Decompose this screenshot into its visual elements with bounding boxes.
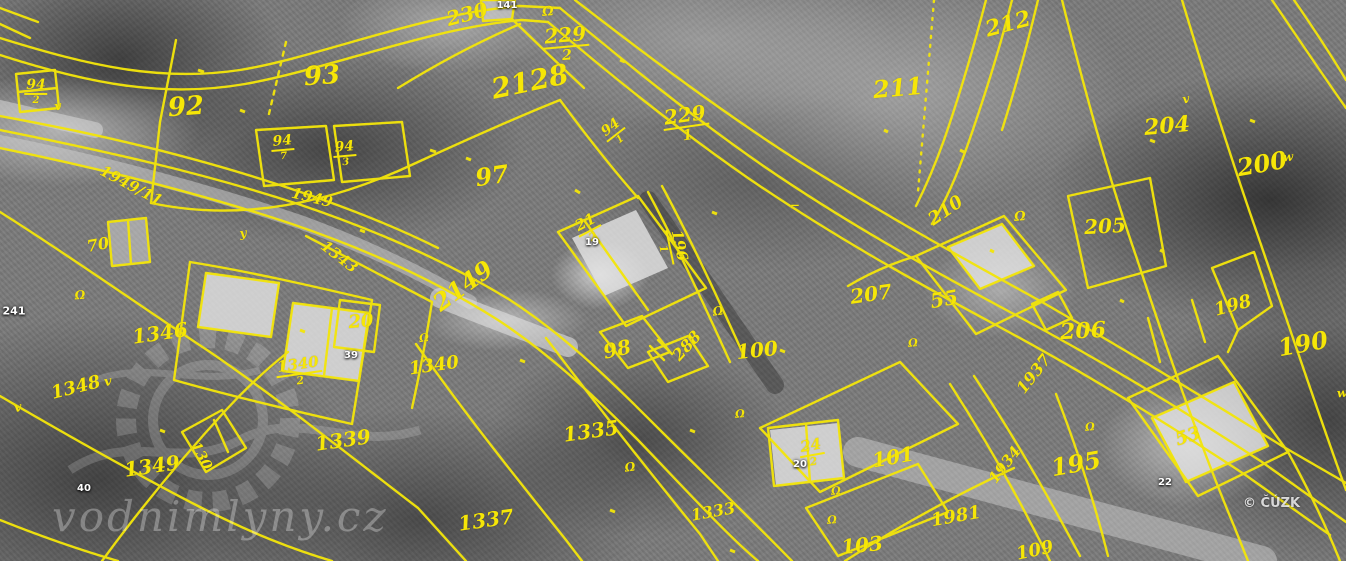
land-use-symbol: Ω: [908, 337, 919, 349]
land-use-symbol: v: [54, 99, 63, 112]
parcel-number-label: 1934: [986, 444, 1024, 486]
map-canvas[interactable]: 2128929397230229222919429479439412112122…: [0, 0, 1346, 561]
parcel-number-label: 2149: [429, 257, 497, 316]
parcel-number-label: 55: [929, 287, 960, 312]
parcel-number-label: 207: [849, 281, 893, 307]
house-number-label: 20: [793, 460, 807, 470]
parcel-number-label: 100: [735, 338, 779, 362]
house-number-label: 22: [1158, 478, 1172, 488]
parcel-number-label: 2291: [661, 102, 712, 146]
parcel-number-label: 1949: [290, 186, 334, 211]
land-use-symbol: Ω: [735, 408, 746, 420]
land-use-symbol: y: [239, 227, 248, 240]
parcel-number-label: 205: [1084, 215, 1127, 237]
parcel-number-label: 210: [925, 193, 966, 229]
parcel-number-label: 1346: [131, 319, 189, 347]
parcel-number-label: 1981: [930, 504, 982, 530]
parcel-number-label: 93: [303, 62, 341, 90]
parcel-number-label: 288: [670, 328, 704, 364]
parcel-number-label: 103: [840, 533, 884, 557]
parcel-number-label: 2128: [489, 60, 571, 104]
land-use-symbol: ⌐: [790, 200, 800, 212]
parcel-number-label: 1349: [123, 452, 181, 480]
land-use-symbol: Ω: [418, 332, 429, 344]
parcel-number-label: 1335: [562, 417, 620, 445]
parcel-number-label: 941: [597, 115, 633, 152]
parcel-number-label: 1337: [457, 506, 515, 534]
parcel-number-label: 1333: [690, 500, 737, 523]
house-number-label: 241: [3, 306, 26, 317]
land-use-symbol: v: [103, 375, 113, 389]
parcel-number-label: 1348: [50, 373, 103, 403]
parcel-number-label: 195: [1049, 448, 1103, 480]
parcel-number-label: 212: [983, 7, 1033, 40]
land-use-symbol: Ω: [1085, 421, 1096, 433]
parcel-number-label: 98: [601, 336, 632, 361]
parcel-number-label: 230: [444, 0, 490, 29]
parcel-number-label: 947: [270, 133, 296, 163]
parcel-number-label: 53: [1173, 425, 1202, 450]
parcel-number-label: 206: [1059, 319, 1106, 343]
parcel-number-label: 942: [24, 78, 47, 106]
label-layer: 2128929397230229222919429479439412112122…: [0, 0, 1346, 561]
parcel-number-label: 1343: [318, 238, 360, 276]
land-use-symbol: Ω: [624, 460, 636, 473]
parcel-number-label: 101: [871, 444, 916, 471]
parcel-number-label: 109: [1015, 538, 1055, 561]
land-use-symbol: Ω: [827, 514, 838, 526]
parcel-number-label: 92: [167, 93, 205, 121]
house-number-label: 141: [497, 1, 518, 11]
parcel-number-label: 1961: [654, 227, 690, 268]
parcel-number-label: 204: [1143, 113, 1191, 139]
parcel-number-label: 198: [1213, 292, 1254, 319]
parcel-number-label: 943: [332, 139, 358, 169]
map-attribution: © ČÚZK: [1243, 496, 1300, 511]
land-use-symbol: v: [1182, 92, 1191, 105]
parcel-number-label: 97: [474, 162, 510, 190]
parcel-number-label: 1937: [1014, 352, 1054, 397]
parcel-number-label: 2292: [542, 23, 591, 65]
parcel-number-label: 20: [348, 312, 375, 332]
parcel-number-label: 13402: [274, 354, 323, 390]
land-use-symbol: Ω: [74, 289, 86, 302]
land-use-symbol: v: [13, 401, 23, 415]
parcel-number-label: 200: [1235, 148, 1289, 180]
parcel-number-label: 1949/11: [97, 163, 164, 208]
land-use-symbol: Ω: [712, 304, 724, 317]
land-use-symbol: Ω: [542, 5, 555, 19]
parcel-number-label: 211: [872, 74, 924, 102]
parcel-number-label: 212: [571, 210, 607, 248]
parcel-number-label: 1339: [314, 426, 372, 454]
land-use-symbol: w: [1336, 387, 1346, 400]
house-number-label: 19: [585, 238, 599, 248]
parcel-number-label: 70: [86, 235, 111, 255]
house-number-label: 40: [77, 484, 91, 494]
house-number-label: 39: [344, 351, 358, 361]
parcel-number-label: 130: [188, 440, 214, 472]
land-use-symbol: Ω: [1014, 210, 1027, 224]
parcel-number-label: 1340: [408, 354, 460, 379]
parcel-number-label: 242: [797, 436, 827, 470]
land-use-symbol: Ω: [831, 485, 842, 497]
parcel-number-label: 190: [1276, 328, 1330, 360]
land-use-symbol: w: [1282, 151, 1293, 164]
